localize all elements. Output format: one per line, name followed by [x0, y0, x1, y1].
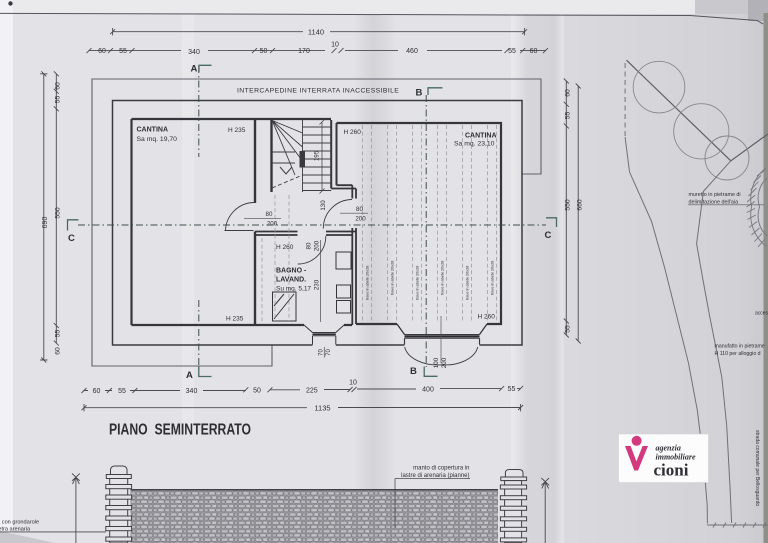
- svg-text:200: 200: [355, 216, 366, 223]
- svg-text:55: 55: [508, 48, 516, 55]
- svg-text:80: 80: [356, 206, 363, 213]
- svg-text:195: 195: [314, 150, 321, 161]
- svg-text:trave in abete 20x28: trave in abete 20x28: [491, 261, 495, 295]
- svg-text:delimitazione dell'aia: delimitazione dell'aia: [689, 199, 739, 205]
- svg-text:55: 55: [508, 386, 516, 393]
- svg-text:340: 340: [188, 49, 200, 56]
- svg-text:50: 50: [260, 48, 268, 55]
- svg-text:55: 55: [55, 96, 62, 104]
- svg-text:60: 60: [55, 82, 62, 90]
- svg-text:200: 200: [314, 240, 321, 251]
- svg-text:trave in abete 20x28: trave in abete 20x28: [441, 261, 445, 295]
- svg-text:10: 10: [349, 380, 357, 387]
- svg-text:70: 70: [326, 349, 332, 356]
- svg-text:H 235: H 235: [226, 316, 244, 323]
- svg-text:cioni: cioni: [654, 461, 689, 480]
- svg-text:1140: 1140: [308, 28, 324, 37]
- svg-text:pietra arenaria: pietra arenaria: [0, 527, 31, 533]
- svg-text:60: 60: [55, 347, 62, 355]
- svg-text:B: B: [416, 88, 423, 99]
- svg-text:INTERCAPEDINE INTERRATA INACCE: INTERCAPEDINE INTERRATA INACCESSIBILE: [237, 88, 399, 95]
- svg-text:strada comunale per Bellosguar: strada comunale per Bellosguardo: [754, 430, 760, 506]
- svg-text:690: 690: [42, 217, 49, 229]
- svg-text:60: 60: [530, 48, 538, 55]
- svg-text:H 260: H 260: [344, 129, 362, 136]
- svg-text:na con grondarole: na con grondarole: [0, 520, 39, 526]
- svg-text:trave in abete 20x28: trave in abete 20x28: [366, 266, 370, 300]
- svg-text:manto di copertura in: manto di copertura in: [413, 465, 469, 471]
- svg-text:55: 55: [55, 330, 62, 338]
- svg-text:60: 60: [565, 89, 572, 97]
- svg-text:H 260: H 260: [276, 244, 294, 251]
- svg-text:muretto in pietrame di: muretto in pietrame di: [689, 192, 741, 198]
- svg-text:CANTINA: CANTINA: [137, 127, 169, 134]
- svg-text:BAGNO -: BAGNO -: [276, 268, 307, 275]
- svg-text:170: 170: [298, 48, 310, 55]
- svg-text:trave in abete 20x28: trave in abete 20x28: [466, 266, 470, 300]
- svg-text:200: 200: [441, 357, 448, 368]
- svg-text:200: 200: [267, 221, 278, 228]
- svg-text:60: 60: [93, 388, 101, 395]
- svg-text:A: A: [191, 64, 198, 75]
- svg-text:A: A: [186, 370, 193, 381]
- svg-text:1135: 1135: [314, 404, 330, 413]
- svg-text:Sa mq. 19,70: Sa mq. 19,70: [137, 136, 178, 143]
- svg-text:manufatto in pietrame: manufatto in pietrame: [715, 344, 765, 350]
- svg-text:PIANO SEMINTERRATO: PIANO SEMINTERRATO: [109, 422, 251, 439]
- svg-text:340: 340: [186, 388, 198, 395]
- svg-text:80: 80: [306, 242, 313, 249]
- svg-text:50: 50: [253, 388, 261, 395]
- svg-text:70: 70: [319, 349, 325, 356]
- svg-text:55: 55: [565, 112, 572, 120]
- svg-text:B: B: [410, 366, 417, 377]
- svg-text:460: 460: [406, 48, 418, 55]
- svg-text:Sa mq. 23,10: Sa mq. 23,10: [454, 141, 495, 148]
- svg-text:55: 55: [565, 325, 572, 333]
- svg-text:660: 660: [577, 199, 584, 211]
- svg-text:550: 550: [565, 199, 572, 211]
- svg-text:60: 60: [98, 48, 106, 55]
- svg-text:C: C: [545, 230, 552, 241]
- svg-text:trave in abete 20x28: trave in abete 20x28: [416, 266, 420, 300]
- svg-text:225: 225: [306, 387, 318, 394]
- svg-text:C: C: [68, 233, 75, 244]
- svg-text:55: 55: [119, 48, 127, 55]
- svg-text:55: 55: [118, 388, 126, 395]
- svg-text:LAVAND.: LAVAND.: [276, 277, 306, 284]
- svg-text:agenzia: agenzia: [656, 444, 681, 453]
- svg-text:H 260: H 260: [478, 314, 496, 321]
- svg-text:400: 400: [422, 387, 434, 394]
- svg-text:CANTINA: CANTINA: [465, 133, 497, 140]
- svg-text:100: 100: [433, 357, 440, 368]
- svg-text:Su mq. 5,17: Su mq. 5,17: [276, 286, 311, 293]
- svg-text:H 110 per alloggio d: H 110 per alloggio d: [715, 351, 761, 357]
- svg-text:accesso ca: accesso ca: [755, 311, 768, 317]
- svg-text:550: 550: [55, 207, 62, 219]
- svg-text:130: 130: [320, 200, 327, 211]
- svg-text:trave in abete 20x28: trave in abete 20x28: [391, 261, 395, 295]
- svg-text:H 235: H 235: [228, 127, 246, 134]
- svg-text:10: 10: [331, 42, 339, 49]
- svg-text:230: 230: [314, 279, 321, 290]
- svg-text:80: 80: [266, 211, 273, 218]
